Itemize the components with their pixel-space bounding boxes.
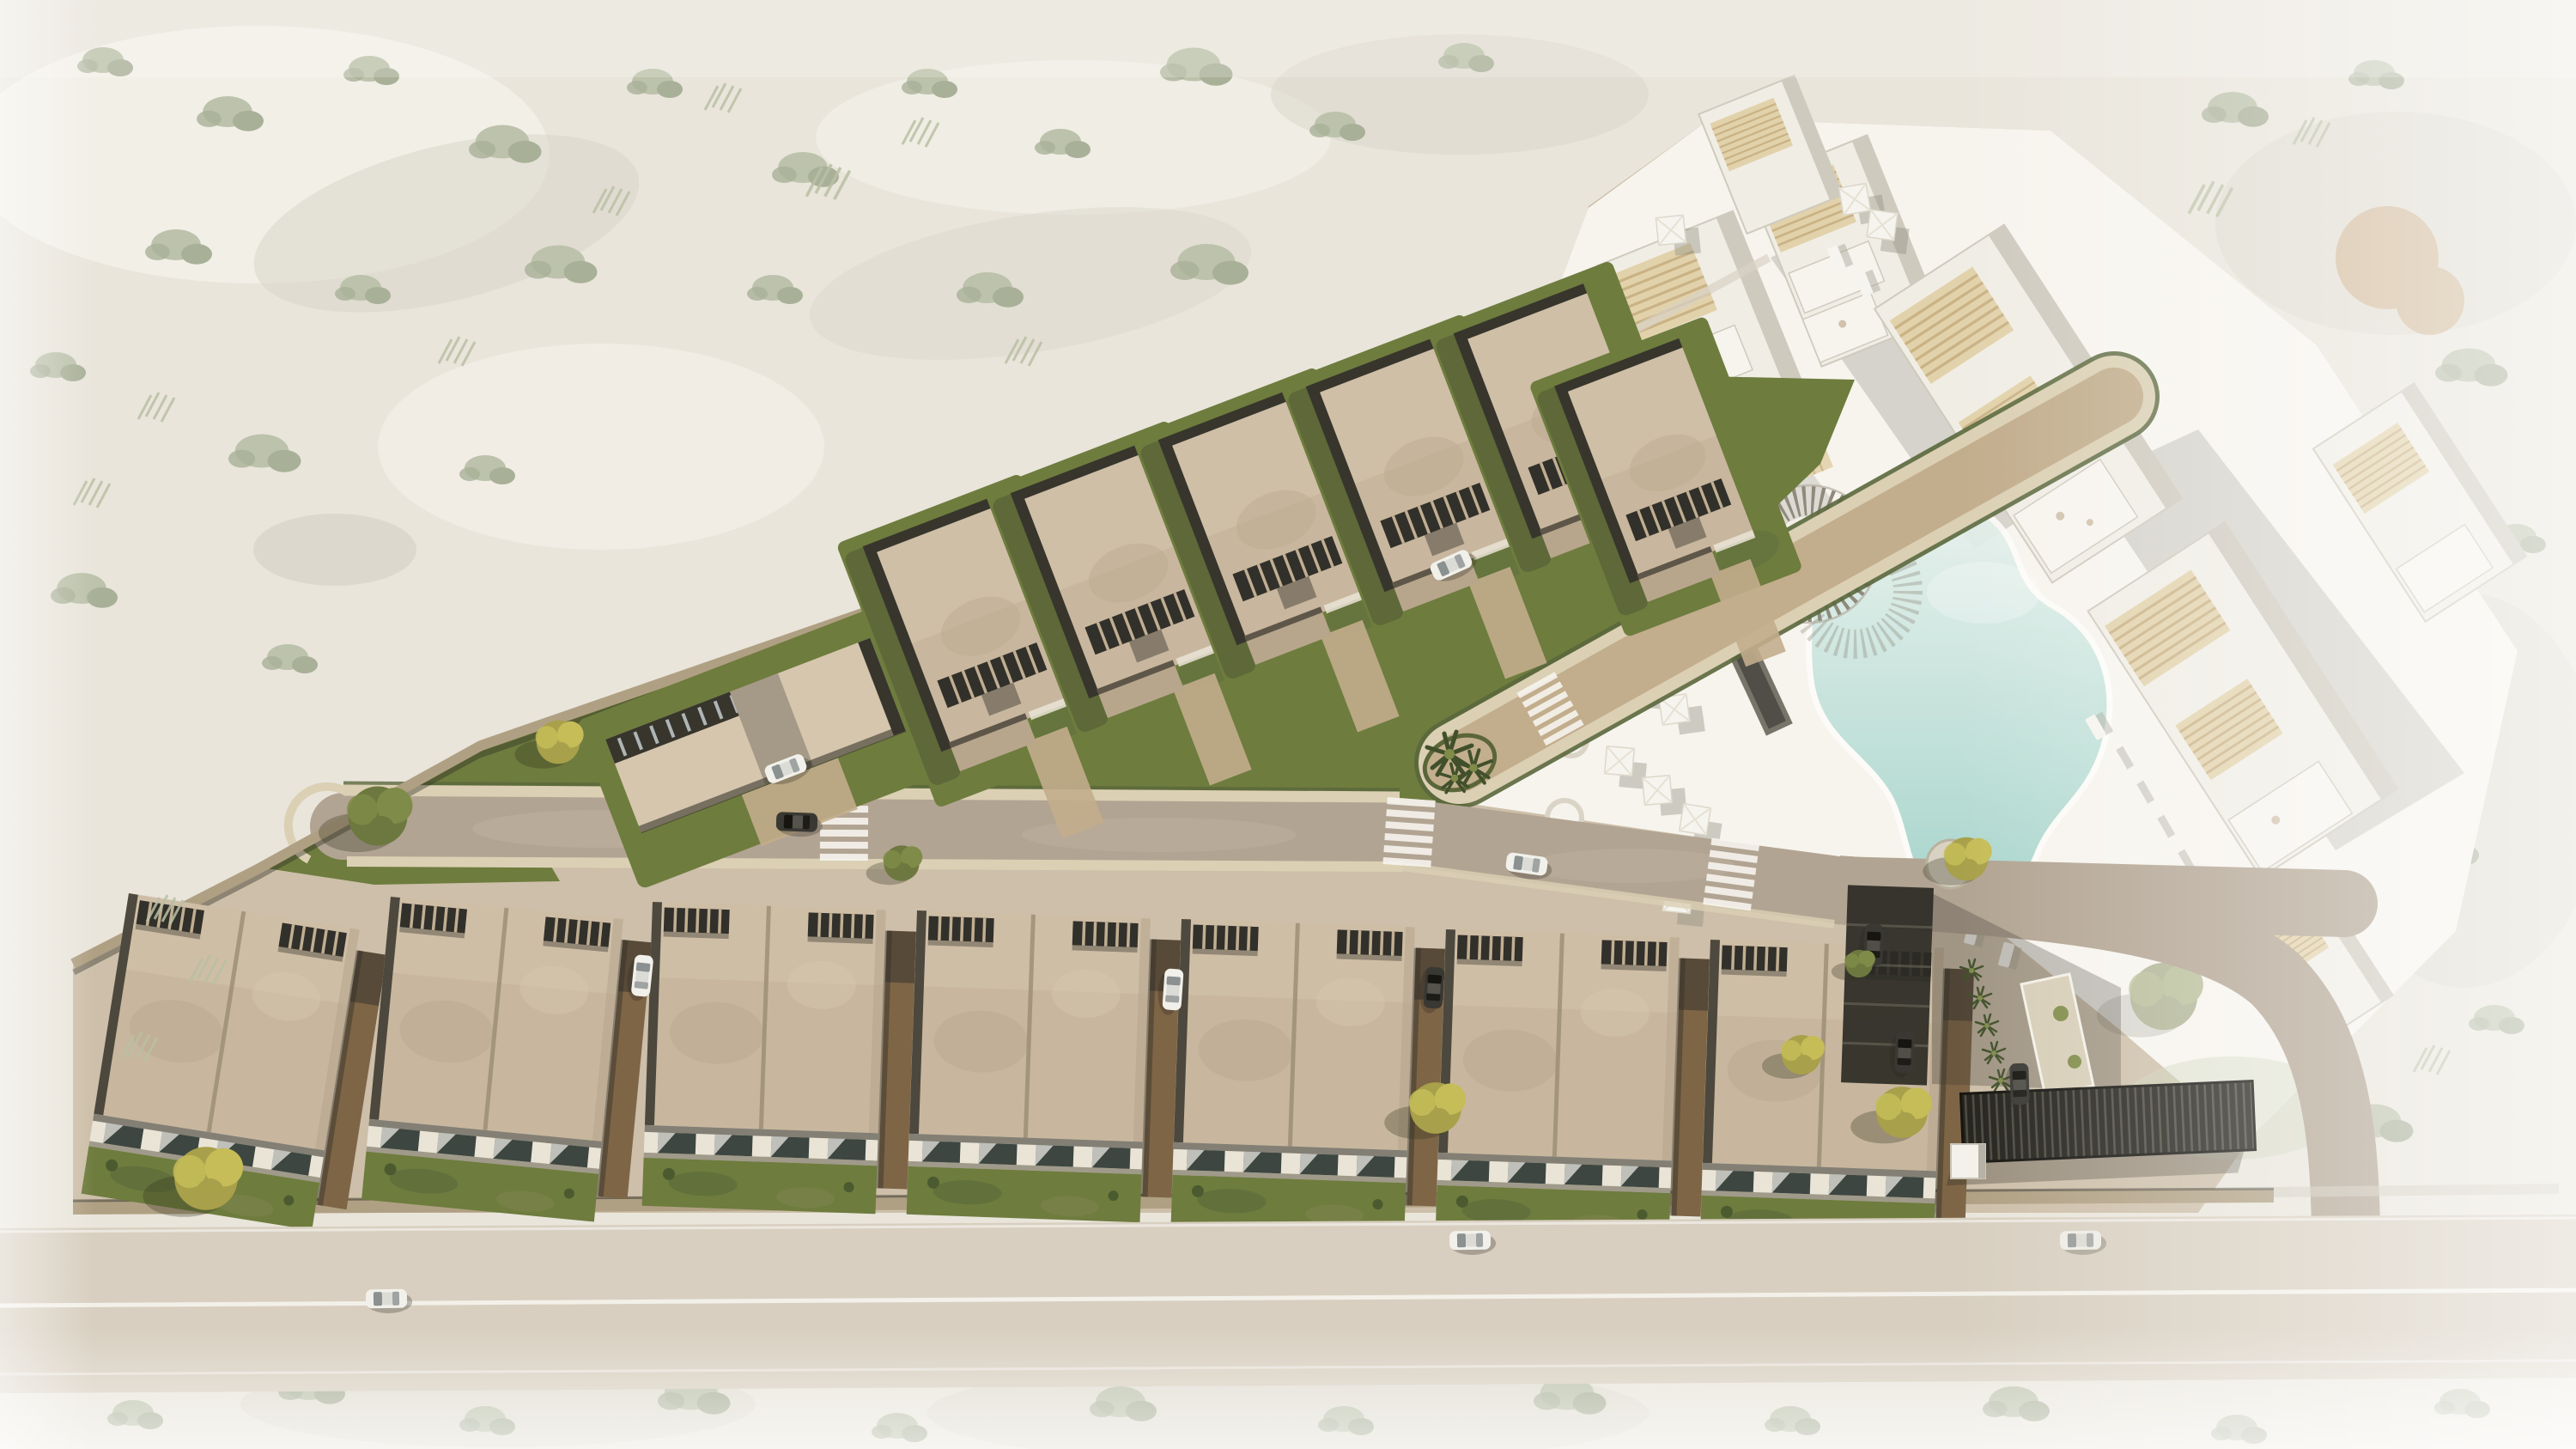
- townhouse-block: [907, 910, 1182, 1224]
- townhouse-block: [642, 902, 917, 1215]
- aerial-site-render: [0, 0, 2576, 1449]
- townhouse-block: [1436, 929, 1710, 1243]
- townhouse-block: [1171, 919, 1446, 1233]
- carport-row: [1841, 885, 1934, 1085]
- townhouse-block: [361, 897, 654, 1225]
